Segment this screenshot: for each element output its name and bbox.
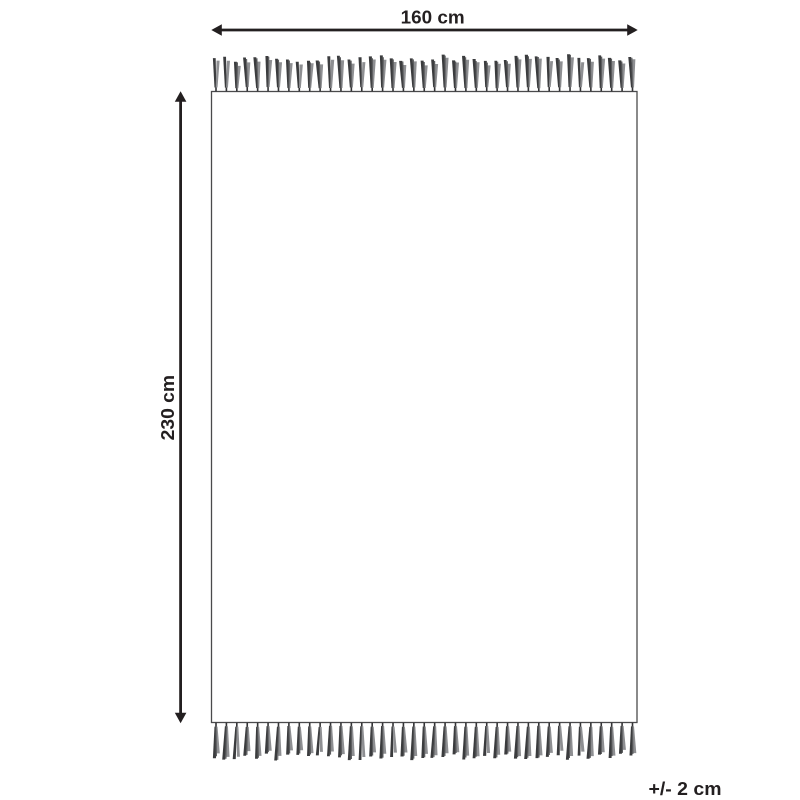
svg-text:160 cm: 160 cm xyxy=(401,8,465,28)
svg-text:+/- 2 cm: +/- 2 cm xyxy=(649,779,722,799)
svg-text:230 cm: 230 cm xyxy=(158,375,178,441)
